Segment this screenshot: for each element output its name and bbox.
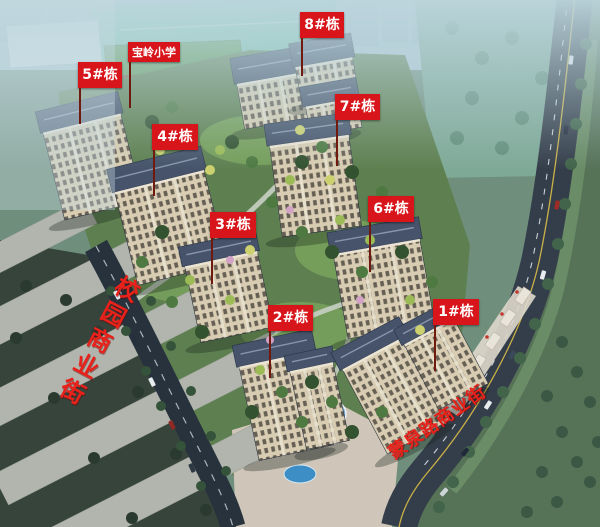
- flag-building-7: 7#栋: [335, 94, 380, 120]
- flag-building-8: 8#栋: [300, 12, 344, 38]
- flag-building-2: 2#栋: [268, 305, 313, 331]
- flag-school: 宝岭小学: [128, 42, 180, 62]
- corner-haze: [0, 0, 115, 210]
- flag-building-6: 6#栋: [368, 196, 414, 222]
- entrance-pool: [284, 465, 316, 483]
- flag-building-4: 4#栋: [152, 124, 198, 150]
- flag-building-3: 3#栋: [210, 212, 256, 238]
- flag-building-5: 5#栋: [78, 62, 122, 88]
- flag-building-1: 1#栋: [433, 299, 479, 325]
- aerial-rendering-root: 8#栋 宝岭小学 5#栋 7#栋 4#栋 6#栋 3#栋 2#栋 1#栋 校园商…: [0, 0, 600, 527]
